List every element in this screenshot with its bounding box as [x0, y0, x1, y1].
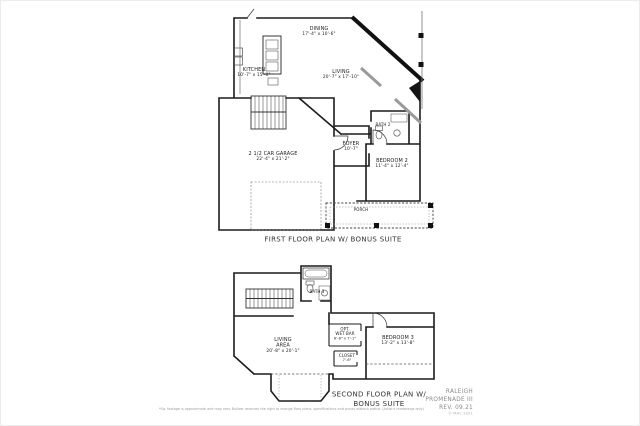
branding-plan-name: PROMENADE III [415, 396, 473, 404]
room-label-bedroom3: BEDROOM 3 13'-2" x 13'-8" [381, 335, 414, 346]
first-floor-porch [325, 203, 433, 228]
deck-post [419, 33, 424, 38]
disclaimer-text: *Sq. footage is approximate and may vary… [159, 407, 424, 411]
room-label-living-area: LIVING AREA 20'-8" x 20'-1" [266, 337, 299, 354]
fireplace [409, 81, 420, 102]
branding-revision: REV. 09.21 [415, 404, 473, 412]
room-label-foyer: FOYER 10'-7" [343, 141, 360, 152]
room-label-wet-bar: OPT. WET BAR 6'-8" x 7'-1" [334, 327, 356, 341]
second-floor-stairs [246, 289, 293, 308]
room-label-kitchen: KITCHEN 10'-7" x 15'-0" [237, 67, 270, 78]
room-label-closet: CLOSET 7'-6" [339, 354, 355, 363]
room-label-dining: DINING 17'-4" x 10'-6" [302, 26, 335, 37]
bedroom3-door-swing [373, 313, 387, 327]
room-label-living: LIVING 20'-7" x 17'-10" [323, 69, 359, 80]
kitchen-fixtures [235, 20, 282, 94]
bay-ceiling-dashed [279, 375, 321, 400]
first-floor-plan-drawing [211, 6, 443, 241]
bath3-fixtures [303, 268, 330, 300]
first-floor-caption: FIRST FLOOR PLAN W/ BONUS SUITE [264, 236, 401, 245]
room-label-bath3: BATH 3 [309, 290, 324, 295]
branding-community: RALEIGH [415, 388, 473, 396]
room-label-porch: PORCH [354, 208, 368, 213]
garage-door-outline [251, 182, 321, 230]
first-floor-stairs [251, 96, 286, 129]
branding-copyright: © MHC 2021 [415, 412, 473, 417]
room-label-bath2: BATH 2 [375, 123, 390, 128]
deck-post [419, 62, 424, 67]
branding-block: RALEIGH PROMENADE III REV. 09.21 © MHC 2… [415, 388, 473, 417]
room-label-garage: 2 1/2 CAR GARAGE 22'-4" x 21'-2" [249, 151, 298, 162]
room-label-bedroom2: BEDROOM 2 11'-4" x 12'-4" [375, 158, 408, 169]
floorplan-sheet: DINING 17'-4" x 10'-6" KITCHEN 10'-7" x … [0, 0, 640, 426]
